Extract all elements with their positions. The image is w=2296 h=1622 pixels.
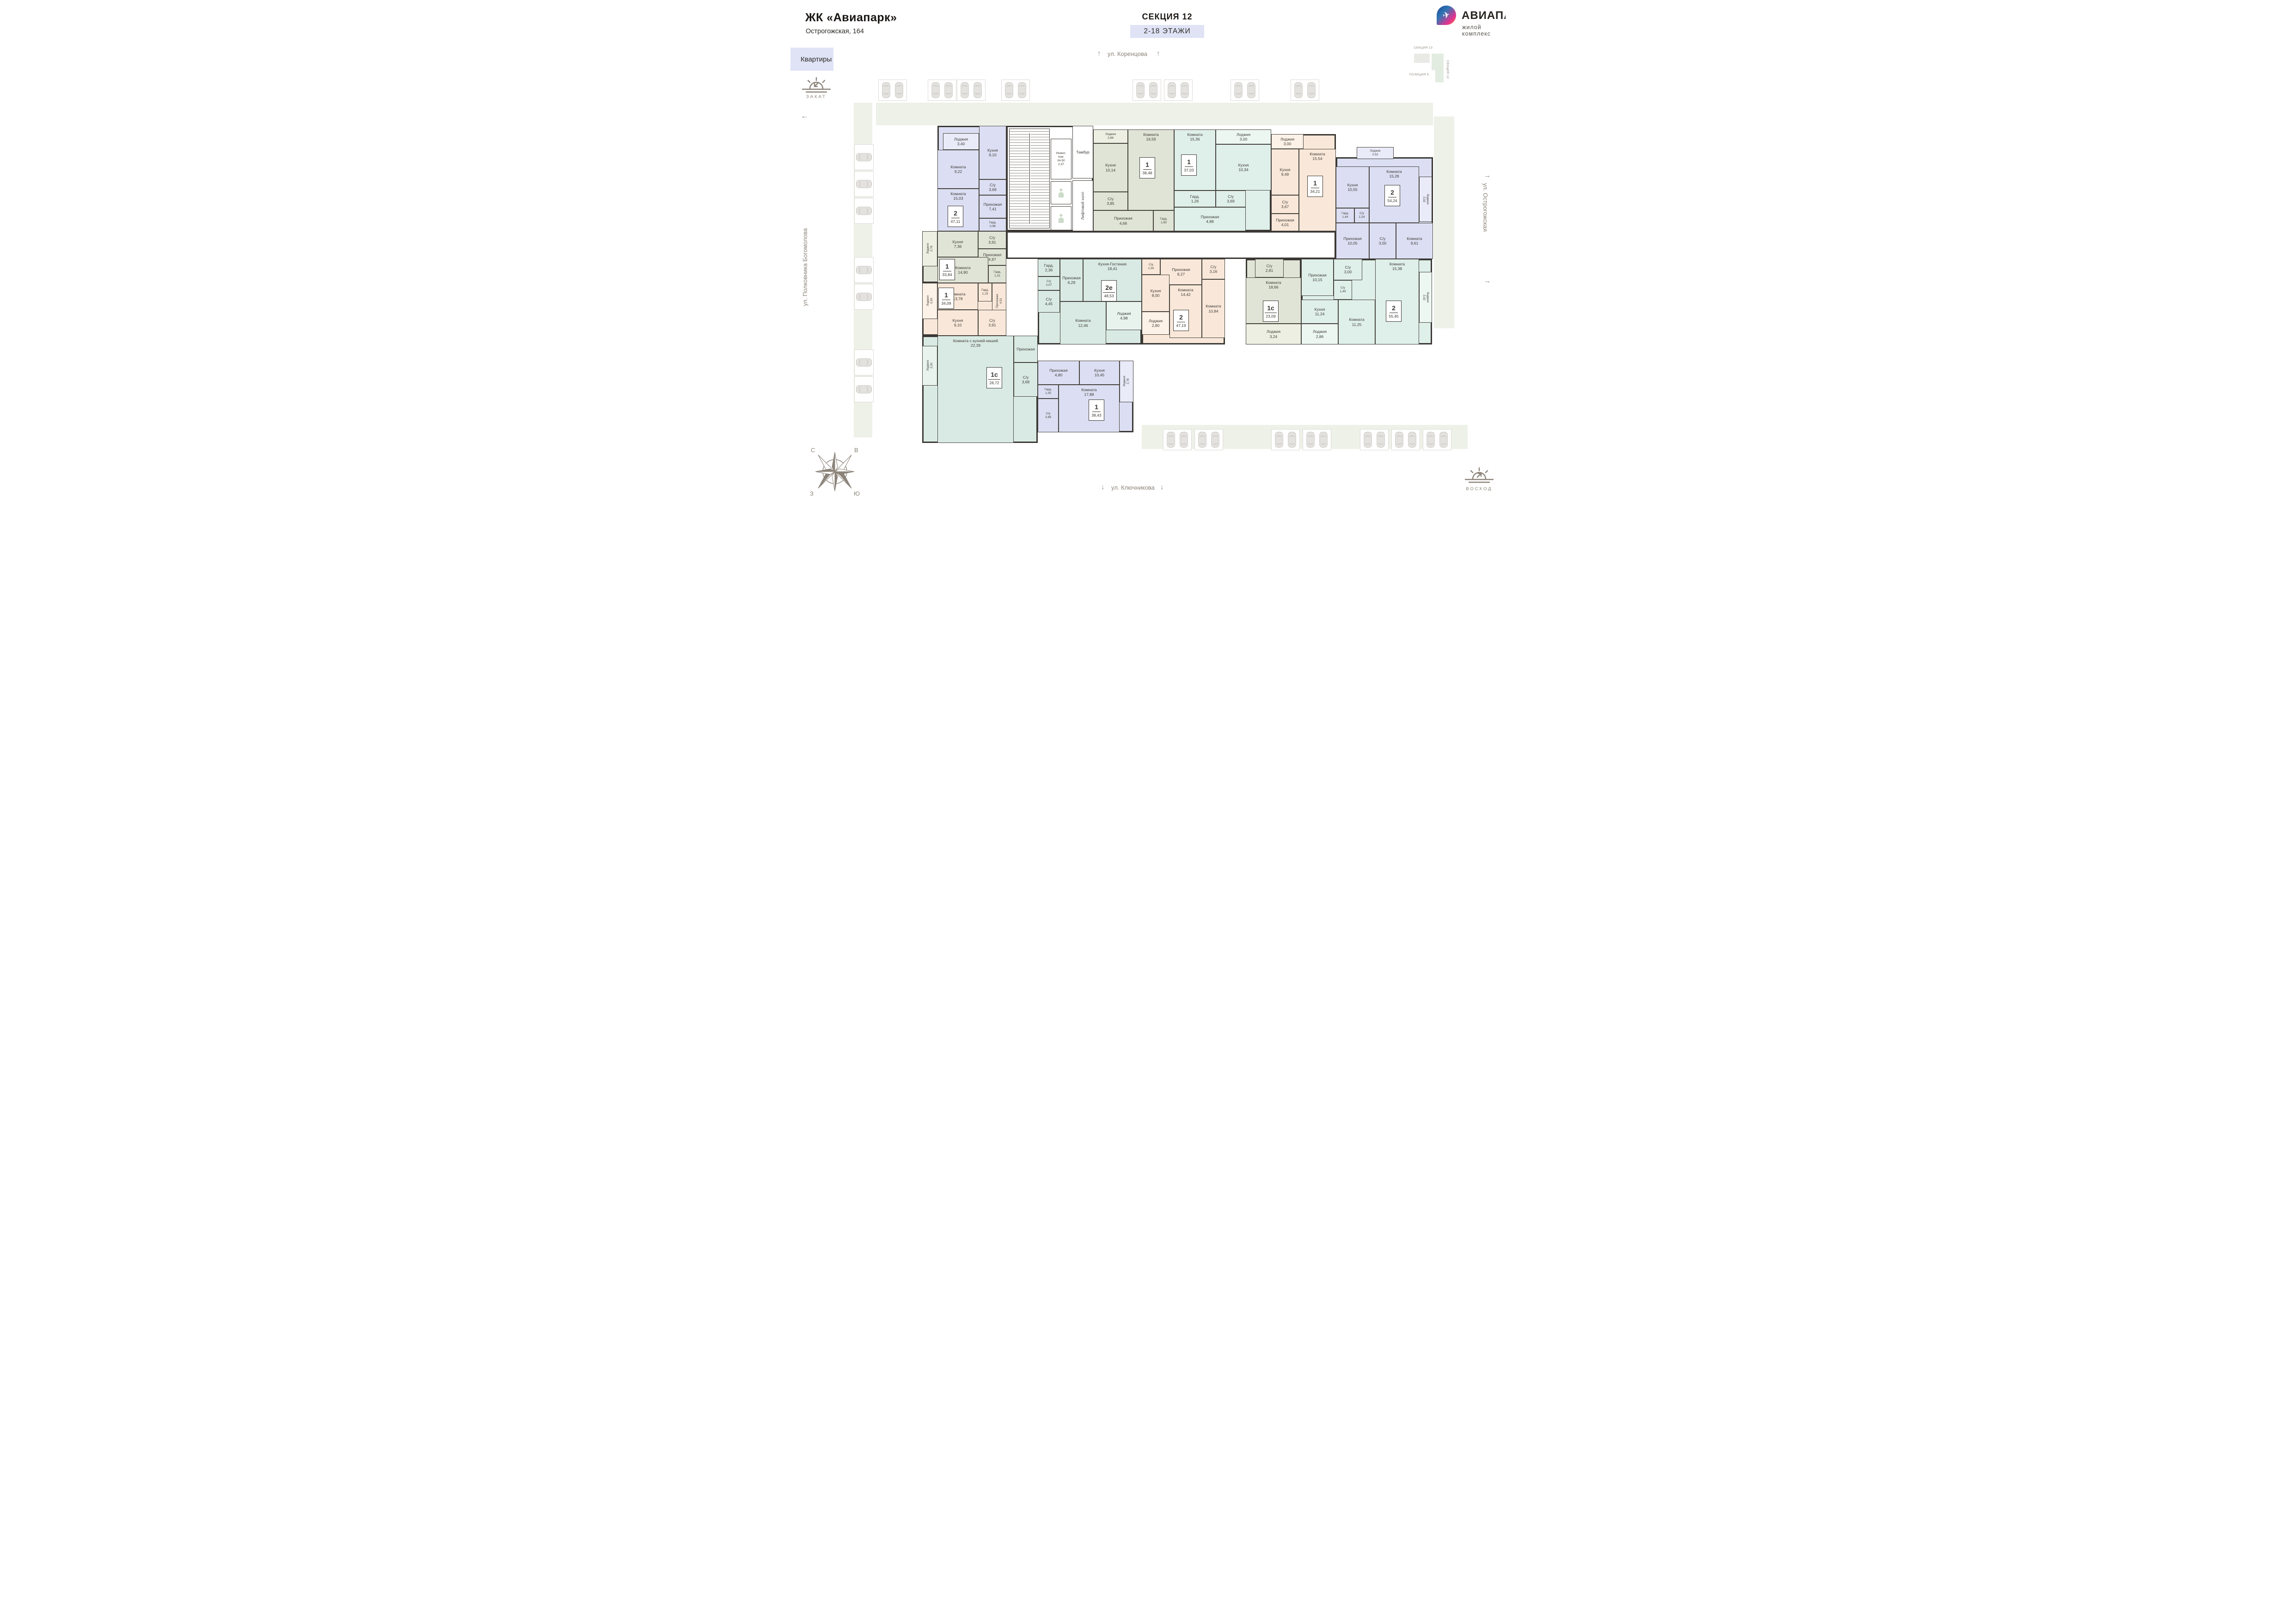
room: Лоджия2,78 [1120,361,1133,402]
room-label: Комната10,84 [1206,304,1221,313]
car-icon [1305,431,1316,449]
apartment-area: 54,24 [1387,197,1397,203]
car-icon [972,81,983,99]
room: Кухня8,00 [1142,275,1169,312]
parking-stall [854,171,874,197]
room: Прихожая4,66 [1093,210,1153,231]
room: Кухня9,10 [979,126,1006,179]
room: С/у3,68 [1038,399,1059,432]
apartment-badge: 138,43 [1089,399,1104,421]
apartment-area: 55,45 [1389,313,1398,319]
room: С/у3,85 [1093,192,1128,210]
car-icon [1197,431,1208,449]
room: Прихожая4,80 [1038,361,1079,385]
room: Лоджия3,40 [943,133,979,150]
room: Лоджия3,02 [1419,177,1432,222]
room: Гард.1,31 [988,265,1006,283]
parking-stall [928,80,956,101]
apartment-type: 1 [943,262,951,271]
room-label: Комната15,03 [950,189,966,201]
room: Кухня9,10 [937,310,978,336]
apartment-badge: 137,03 [1181,154,1197,176]
apartment-area: 38,43 [1091,412,1101,418]
car-icon [1286,431,1298,449]
room-label: Кухня9,10 [987,148,998,157]
room-label: Лоджия2,80 [1149,319,1163,328]
apartment-type: 2 [1390,304,1398,313]
room: Лоджия3,00 [1216,129,1271,144]
room-label: Прихожая4,80 [1049,368,1067,377]
room: С/у3,68 [1014,362,1038,397]
room-label: С/у3,67 [1281,200,1289,209]
room-label: Лоджия2,68 [1105,133,1116,140]
corridor [1006,231,1336,259]
apartment-type: 1 [1185,158,1193,167]
room: Лоджия2,68 [1093,129,1128,143]
parking-stall [1133,80,1161,101]
apartment-badge: 254,24 [1384,185,1400,206]
apartment-area: 38,48 [1142,170,1152,175]
parking-stall [878,80,907,101]
room: С/у1,49 [1334,280,1352,300]
nonresidential-label: Нежил.пом.34-502,47 [1056,152,1066,166]
car-icon [1306,81,1317,99]
apartment-badge: 138,48 [1139,157,1155,178]
room: С/у3,16 [1202,259,1225,279]
apartment-area: 33,84 [942,271,952,277]
room: С/у3,91 [978,231,1006,249]
room: Комната12,46 [1060,301,1106,344]
room-label: С/у3,91 [988,235,996,245]
room-label: С/у3,91 [988,318,996,327]
room-label: С/у3,16 [1210,264,1218,274]
stair-rail [1029,133,1031,224]
room-label: Кухня9,10 [953,318,963,327]
room-label: Лоджия3,02 [1422,292,1429,302]
vestibule-label: Тамбур [1076,150,1090,154]
apartment-badge: 1с23,09 [1263,301,1279,322]
room-label: Кухня8,00 [1151,289,1161,298]
room-label: Кухня10,45 [1094,368,1105,377]
apartment-area: 23,09 [1266,313,1275,319]
room: Лоджия3,20 [922,346,937,386]
car-icon [1362,431,1373,449]
room-label: Кухня11,24 [1315,307,1325,316]
apartment-badge: 255,45 [1386,301,1402,322]
room-label: Прихожая4,01 [1276,218,1294,227]
room: Комната10,84 [1202,279,1225,338]
room-label: Комната12,46 [1075,318,1090,327]
parking-stall [957,80,986,101]
apartment-area: 47,19 [1176,322,1186,328]
room-label: Лоджия2,86 [1313,329,1327,338]
room-label: Кухня9,49 [1280,167,1291,177]
room-label: Гард.1,05 [1045,388,1052,395]
floor-plan-page: ЖК «Авиапарк» Острогожская, 164 Квартиры… [790,0,1506,505]
room-label: Гард.1,26 [1190,194,1200,203]
room-label: Лоджия3,00 [1237,132,1250,141]
parking-stall [1001,80,1030,101]
room-label: С/у1,54 [1359,212,1365,219]
car-icon [1210,431,1221,449]
room: Кухня10,45 [1079,361,1120,385]
room: Гард.0,96 [979,218,1006,231]
apartment-badge: 134,21 [1307,176,1323,197]
room-label: Лоджия3,20 [926,360,934,371]
room-label: Лоджия2,52 [1370,149,1380,157]
elevator-hall-label: Лифтовой холл [1080,192,1085,220]
room: Лоджия2,80 [1142,312,1169,335]
apartment-type: 2 [1388,188,1396,197]
apartment-type: 2е [1103,283,1115,293]
car-icon [855,178,873,190]
room-label: Прихожая7,41 [984,202,1002,211]
room: Гард.1,90 [1153,210,1174,231]
apartment-type: 1 [1092,403,1101,412]
room: Лоджия2,52 [1357,147,1394,159]
apartment-badge: 1с28,72 [986,367,1002,388]
room: Прихожая [1014,336,1038,362]
parking-stall [1291,80,1319,101]
room-label: С/у3,68 [1045,412,1051,419]
room: Прихожая7,41 [979,195,1006,218]
room-label: Кухня10,55 [1347,183,1358,192]
car-icon [855,384,873,395]
room: С/у3,91 [978,310,1006,336]
car-icon [855,357,873,368]
room: Комната9,61 [1396,223,1433,259]
car-icon [855,152,873,163]
apartment-type: 1 [1311,179,1319,188]
car-icon [1425,431,1436,449]
apartment-badge: 2е48,53 [1101,280,1117,301]
car-icon [1016,81,1028,99]
room-label: Прихожая4,66 [1114,216,1132,225]
room-label: Прихожая10,15 [1308,273,1326,282]
room-label: С/у2,81 [1266,264,1274,273]
room-label: С/у4,45 [1045,297,1053,306]
room-label: Комната18,66 [1266,278,1281,289]
room-label: Комната11,25 [1349,317,1364,326]
parking-stall [854,257,874,283]
room-label: Кухня10,14 [1105,163,1116,172]
apartment-area: 34,09 [941,300,951,306]
car-icon [1179,81,1190,99]
car-icon [1165,431,1176,449]
room-label: С/у3,85 [1107,197,1114,206]
room-label: Гард.0,96 [989,221,997,228]
room-label: Лоджия3,40 [954,137,968,146]
room-label: Гард.1,31 [994,270,1001,278]
staircase [1009,129,1050,228]
car-icon [894,81,905,99]
room-label: Комната16,59 [1143,130,1158,141]
parking-stall [1391,429,1420,450]
car-icon [959,81,970,99]
room: Комната с кухней-нишей22,39 [937,336,1014,443]
car-icon [855,205,873,216]
room: Кухня10,55 [1336,166,1369,208]
car-icon [855,264,873,276]
parking-stall [854,350,874,375]
room-label: Кухня10,34 [1238,163,1249,172]
elevator-hall: Лифтовой холл [1072,180,1093,231]
parking-stall [1231,80,1259,101]
parking-stall [854,198,874,224]
apartment-type: 1с [1265,304,1277,313]
car-icon [1148,81,1159,99]
room-label: Прихожая8,27 [1172,267,1190,276]
room-label: Прихожая10,05 [1343,236,1361,246]
apartment-area: 28,72 [989,380,999,385]
parking-stall [1163,429,1192,450]
room-label: Гард.1,90 [1160,217,1168,225]
apartment-badge: 247,19 [1173,310,1189,331]
room-label: Комната15,54 [1310,149,1325,161]
car-icon [1438,431,1449,449]
room-label: Комната15,38 [1390,259,1405,271]
room-label: С/у3,68 [1022,375,1030,384]
room: Лоджия4,98 [1106,301,1142,330]
apartment-type: 2 [1177,313,1185,322]
landscape-strip [876,103,1433,125]
apartment-area: 48,53 [1104,293,1114,298]
room-label: Комната15,28 [1386,167,1402,178]
vestibule: Тамбур [1072,126,1093,178]
room-label: Лоджия3,24 [1267,329,1280,338]
room: С/у3,67 [1271,195,1299,214]
room: Лоджия3,00 [1271,134,1304,149]
car-icon [1407,431,1418,449]
apartment-badge: 133,84 [939,259,955,280]
room-label: Прихожая4,88 [1201,215,1219,224]
room: Комната9,22 [937,150,979,189]
room-label: С/у3,00 [1344,265,1352,274]
parking-stall [1360,429,1389,450]
apartment-badge: 247,11 [948,206,963,227]
nonresidential-room: Нежил.пом.34-502,47 [1051,139,1071,179]
parking-stall [1164,80,1193,101]
room: С/у3,69 [979,179,1006,195]
room-label: С/у2,07 [1046,280,1052,287]
room: Комната11,25 [1338,300,1375,344]
room: Прихожая6,29 [1060,259,1083,301]
car-icon [1375,431,1386,449]
room-label: С/у1,49 [1340,286,1346,294]
car-icon [1293,81,1304,99]
room-label: Лоджия2,78 [926,243,934,254]
room: С/у1,50 [1142,259,1160,275]
parking-stall [1194,429,1223,450]
room-label: Кухня7,36 [953,240,963,249]
room: Кухня10,14 [1093,143,1128,192]
room: Кухня11,24 [1301,300,1338,324]
room-label: Комната14,90 [955,265,970,275]
apartment-type: 2 [951,209,960,218]
room: Кухня10,34 [1216,144,1271,190]
room: Гард.2,36 [1038,259,1060,276]
landscape-strip [1434,117,1454,328]
room-label: Комната17,88 [1081,385,1096,397]
room-label: Лоджия2,78 [1123,376,1130,387]
car-icon [1246,81,1257,99]
apartment-area: 37,03 [1184,167,1194,172]
apartment-badge: 134,09 [938,288,954,309]
room-label: Лоджия3,20 [926,295,934,306]
room-label: Комната9,61 [1407,236,1422,246]
room-label: Лоджия4,98 [1117,311,1131,320]
parking-stall [1423,429,1451,450]
room-label: Комната15,36 [1187,130,1202,141]
room-label: Прихожая4,51 [996,294,1003,308]
apartment-type: 1 [1143,160,1151,170]
car-icon [930,81,941,99]
room: С/у2,07 [1038,276,1060,290]
room: Лоджия3,02 [1419,272,1432,323]
room-label: Гард.1,19 [981,289,989,296]
room-label: Гард.2,36 [1044,263,1054,272]
elevator [1051,206,1071,230]
car-icon [943,81,954,99]
parking-stall [854,144,874,170]
car-icon [1233,81,1244,99]
room: С/у2,81 [1255,259,1284,277]
apartment-type: 1с [988,370,1000,380]
room: Лоджия2,86 [1301,324,1338,344]
car-icon [1394,431,1405,449]
room-label: Комната14,42 [1178,285,1193,297]
room-label: Прихожая [1016,347,1035,351]
building-floor-plan: Лоджия3,40Кухня9,10Комната9,22Комната15,… [790,0,1506,505]
car-icon [1004,81,1015,99]
apartment-type: 1 [942,291,950,300]
car-icon [1135,81,1146,99]
room-label: Лоджия3,02 [1422,194,1429,204]
parking-stall [854,284,874,310]
room: Гард.1,44 [1336,208,1354,223]
room: Лоджия3,24 [1246,324,1301,344]
car-icon [881,81,892,99]
car-icon [1318,431,1329,449]
room-label: Комната9,22 [950,165,966,174]
car-icon [1178,431,1189,449]
parking-stall [1271,429,1300,450]
room-label: С/у3,69 [989,183,997,192]
elevator [1051,181,1071,204]
room: Лоджия3,20 [922,283,937,319]
car-icon [855,291,873,302]
car-icon [1274,431,1285,449]
room: Прихожая4,88 [1174,207,1246,231]
parking-stall [1303,429,1331,450]
room: Прихожая4,01 [1271,214,1299,231]
room-label: Кухня-Гостиная18,41 [1098,259,1127,271]
room: Гард.1,19 [978,283,992,301]
room-label: Гард.1,44 [1341,212,1349,219]
apartment-area: 47,11 [951,218,961,224]
room-label: Прихожая6,29 [1062,276,1080,285]
room: Гард.1,26 [1174,190,1216,207]
room-label: Комната с кухней-нишей22,39 [953,336,998,348]
room-label: С/у1,50 [1148,263,1154,270]
room: С/у3,00 [1334,259,1362,280]
room-label: С/у3,69 [1227,194,1235,203]
room-label: Лоджия3,00 [1280,137,1294,146]
room: С/у3,69 [1216,190,1246,207]
room: Гард.1,05 [1038,385,1059,399]
parking-stall [854,376,874,402]
room: Лоджия2,78 [922,231,937,266]
room: Прихожая10,05 [1336,223,1369,259]
elevator-person-icon [1058,213,1065,223]
car-icon [1166,81,1177,99]
elevator-person-icon [1058,188,1065,198]
room: Прихожая10,15 [1301,259,1334,296]
room: Кухня9,49 [1271,149,1299,195]
room: С/у3,00 [1369,223,1396,259]
room: С/у4,45 [1038,290,1060,313]
room-label: С/у3,00 [1379,236,1387,246]
room: Кухня7,36 [937,231,978,257]
room: С/у1,54 [1354,208,1369,223]
apartment-area: 34,21 [1310,188,1320,194]
